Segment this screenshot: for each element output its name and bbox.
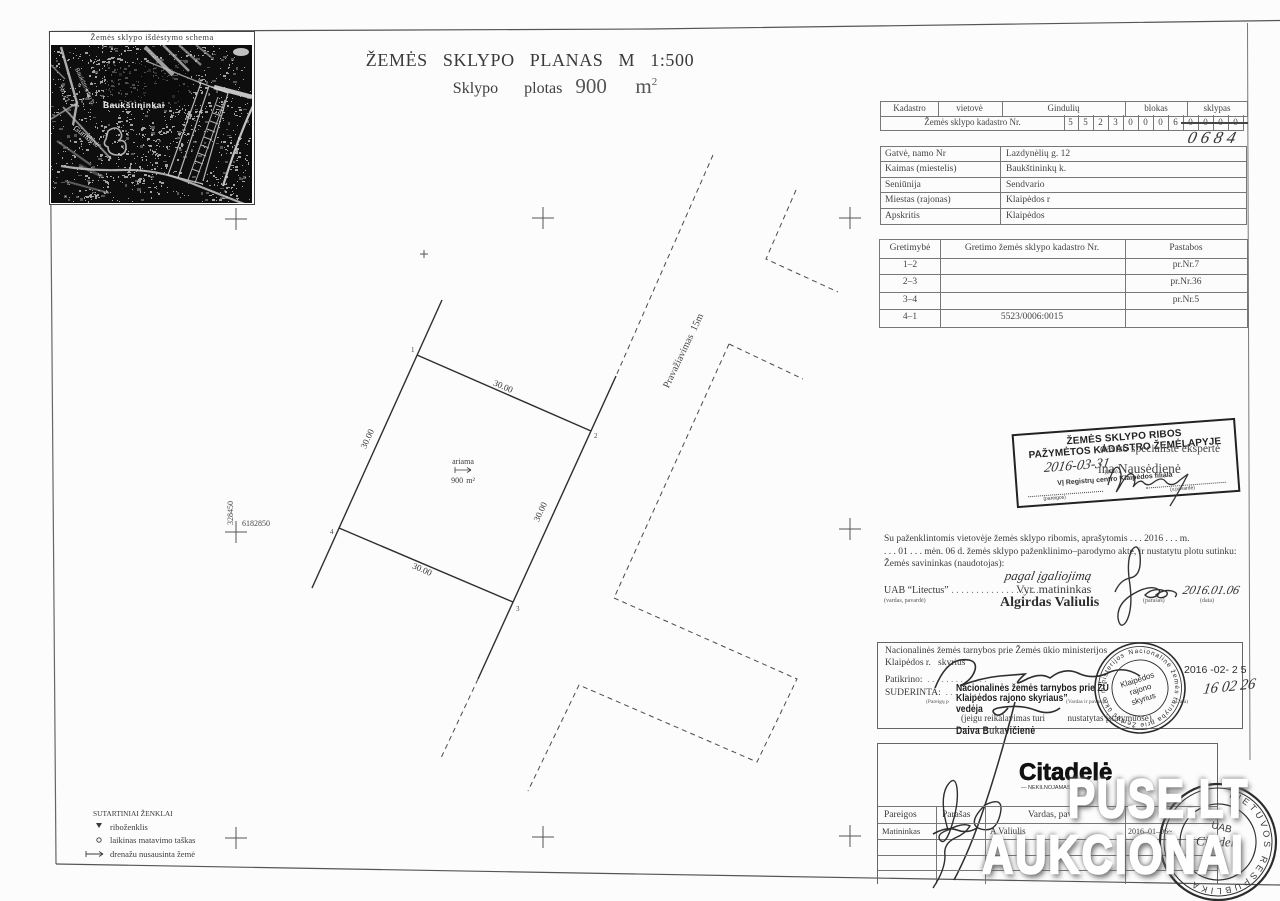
svg-text:30.00: 30.00 — [532, 500, 550, 523]
svg-text:ariama: ariama — [452, 457, 474, 466]
svg-text:4: 4 — [330, 528, 334, 536]
svg-text:drenažu nusausinta žemė: drenažu nusausinta žemė — [110, 849, 195, 859]
svg-text:2: 2 — [594, 432, 598, 440]
svg-text:Pravažiavimas 15m: Pravažiavimas 15m — [661, 312, 706, 390]
svg-text:Baukštininkai: Baukštininkai — [103, 100, 165, 110]
svg-text:riboženklis: riboženklis — [110, 822, 148, 832]
svg-text:328450: 328450 — [226, 501, 235, 525]
svg-text:SUTARTINIAI ŽENKLAI: SUTARTINIAI ŽENKLAI — [93, 808, 173, 818]
svg-text:1: 1 — [411, 346, 415, 354]
svg-text:900 m²: 900 m² — [451, 476, 475, 485]
svg-text:laikinas matavimo taškas: laikinas matavimo taškas — [110, 835, 195, 845]
svg-text:30.00: 30.00 — [359, 427, 377, 450]
svg-text:30.00: 30.00 — [411, 561, 434, 578]
svg-text:6182850: 6182850 — [242, 519, 270, 528]
svg-text:3: 3 — [516, 605, 520, 613]
